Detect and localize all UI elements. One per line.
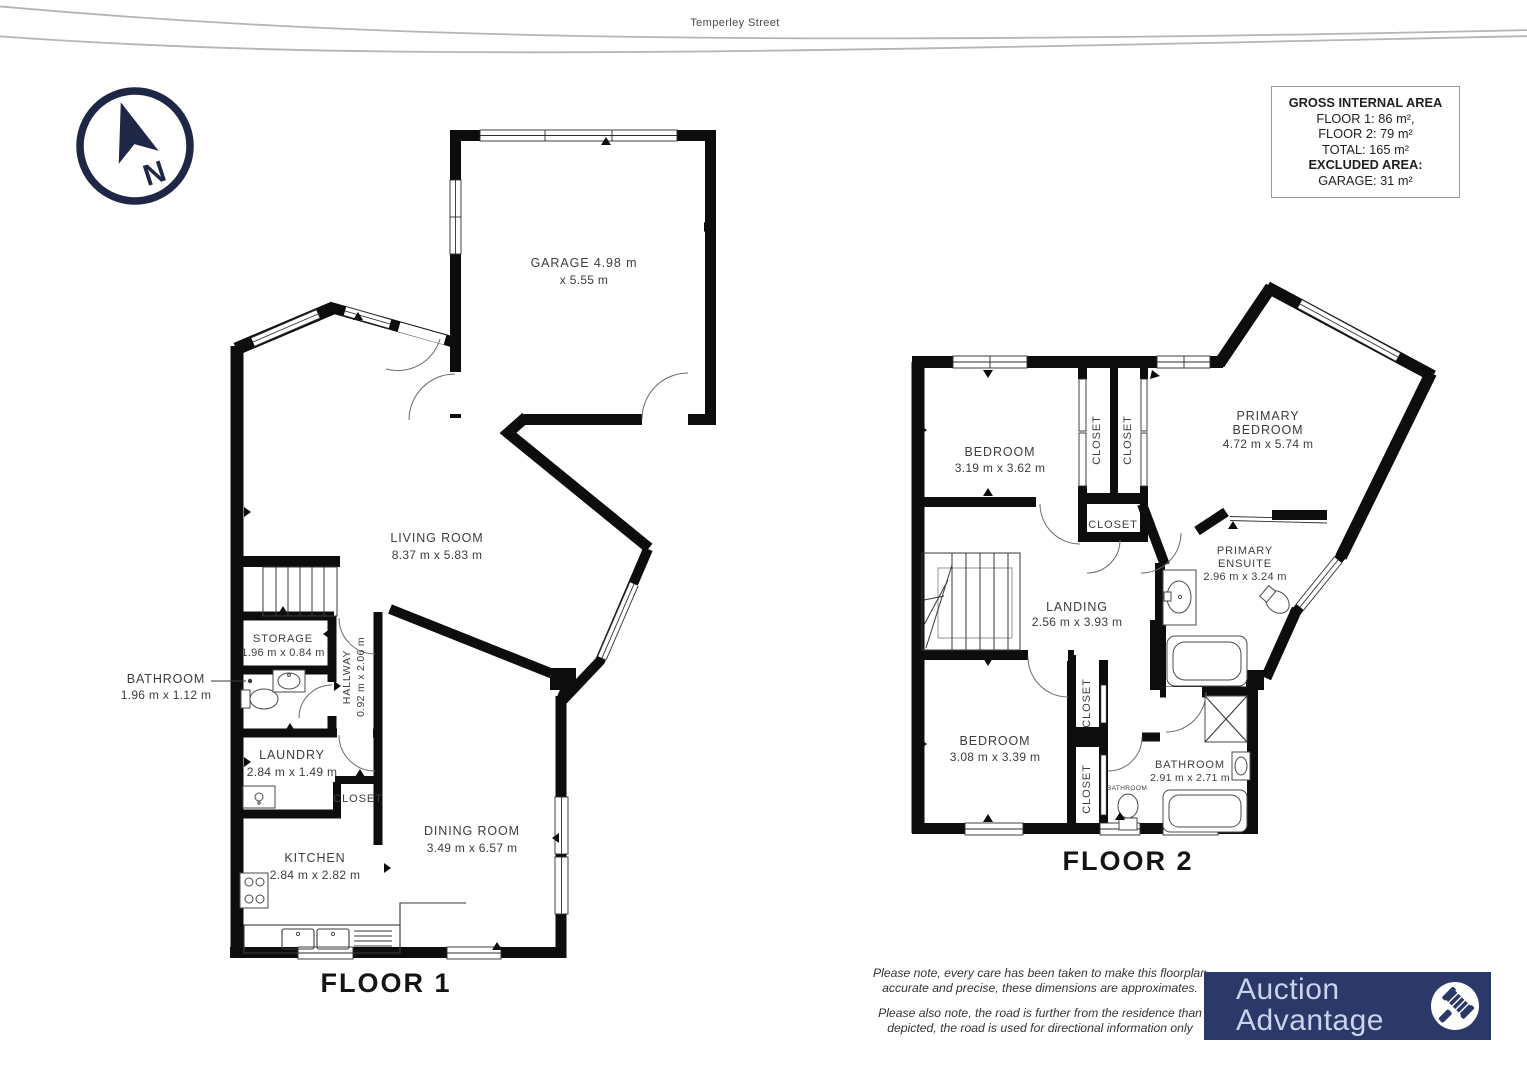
- hallway-label: HALLWAY: [341, 650, 353, 705]
- floor2-stairs: [922, 553, 1020, 650]
- floorplan-page: Temperley Street N: [0, 0, 1527, 1080]
- compass-north-indicator: N: [80, 91, 190, 201]
- closet2-label: CLOSET: [1122, 415, 1134, 464]
- garage-left-window: [450, 180, 461, 254]
- area-floor1: FLOOR 1: 86 m²,: [1274, 111, 1457, 127]
- primary-bedroom-label2: BEDROOM: [1233, 423, 1304, 437]
- area-total: TOTAL: 165 m²: [1274, 142, 1457, 158]
- kitchen-sink-counter-icon: [244, 903, 466, 953]
- disclaimer-line1: Please note, every care has been taken t…: [872, 966, 1208, 981]
- logo-line2: Advantage: [1236, 1005, 1384, 1036]
- ensuite-sink-icon: [1163, 570, 1196, 625]
- laundry-dims: 2.84 m x 1.49 m: [247, 765, 338, 779]
- disclaimer-road: Please also note, the road is further fr…: [872, 1006, 1208, 1036]
- floor2-plan: BEDROOM 3.19 m x 3.62 m CLOSET CLOSET PR…: [912, 287, 1433, 876]
- landing-dims: 2.56 m x 3.93 m: [1032, 615, 1123, 629]
- bathroom1-toilet-icon: [241, 689, 278, 709]
- logo-line1: Auction: [1236, 974, 1384, 1005]
- kitchen-stove-icon: [240, 873, 268, 908]
- floor1-title: FLOOR 1: [320, 968, 451, 998]
- area-excluded-garage: GARAGE: 31 m²: [1274, 173, 1457, 189]
- floor1-stairs: [263, 567, 337, 616]
- kitchen-label: KITCHEN: [284, 851, 345, 865]
- bedroom2-label: BEDROOM: [960, 734, 1031, 748]
- storage-dims: 1.96 m x 0.84 m: [241, 647, 324, 659]
- landing-label: LANDING: [1046, 600, 1108, 614]
- living-angled-window-right: [344, 307, 391, 329]
- living-room-label: LIVING ROOM: [390, 531, 483, 545]
- garage-label: GARAGE 4.98 m: [531, 256, 638, 270]
- laundry-sink-icon: [243, 786, 275, 808]
- bathroom2-bathtub-icon: [1163, 790, 1247, 832]
- bathroom1-label: BATHROOM: [127, 672, 206, 686]
- dining-diagonal-window: [598, 582, 638, 660]
- disclaimer-line3: Please also note, the road is further fr…: [872, 1006, 1208, 1021]
- bedroom1-label: BEDROOM: [965, 445, 1036, 459]
- closet-f1-label: CLOSET: [333, 793, 382, 805]
- road: Temperley Street: [0, 6, 1527, 52]
- bathroom2-label: BATHROOM: [1155, 759, 1225, 771]
- disclaimer-accuracy: Please note, every care has been taken t…: [872, 966, 1208, 996]
- disclaimer-line2: accurate and precise, these dimensions a…: [872, 981, 1208, 996]
- floor1-plan: GARAGE 4.98 m x 5.55 m LIVING ROOM 8.37 …: [121, 130, 711, 998]
- dining-room-label: DINING ROOM: [424, 824, 520, 838]
- bathroom-small-label: BATHROOM: [1107, 785, 1147, 792]
- bathroom2-dims: 2.91 m x 2.71 m: [1150, 772, 1230, 784]
- closet1-label: CLOSET: [1091, 415, 1103, 464]
- area-floor2: FLOOR 2: 79 m²: [1274, 126, 1457, 142]
- bedroom1-dims: 3.19 m x 3.62 m: [955, 461, 1046, 475]
- primary-ensuite-label1: PRIMARY: [1217, 545, 1273, 557]
- bedroom1-top-window: [953, 356, 1027, 368]
- closet4-label: CLOSET: [1081, 678, 1093, 727]
- laundry-label: LAUNDRY: [259, 748, 325, 762]
- storage-label: STORAGE: [253, 633, 313, 645]
- garage-dims: x 5.55 m: [560, 273, 608, 287]
- gross-internal-area-box: GROSS INTERNAL AREA FLOOR 1: 86 m², FLOO…: [1271, 86, 1460, 198]
- bathroom2-sink-icon: [1232, 752, 1250, 780]
- gavel-icon: [1431, 982, 1479, 1030]
- area-title: GROSS INTERNAL AREA: [1274, 95, 1457, 111]
- primary-bedroom-label1: PRIMARY: [1236, 409, 1299, 423]
- garage-top-window: [480, 130, 677, 141]
- primary-ensuite-label2: ENSUITE: [1218, 558, 1272, 570]
- auction-advantage-logo: Auction Advantage: [1204, 972, 1491, 1040]
- living-room-dims: 8.37 m x 5.83 m: [392, 548, 483, 562]
- primary-ensuite-dims: 2.96 m x 3.24 m: [1203, 571, 1286, 583]
- kitchen-dims: 2.84 m x 2.82 m: [270, 868, 361, 882]
- closet3-label: CLOSET: [1088, 519, 1137, 531]
- primary-bedroom-dims: 4.72 m x 5.74 m: [1223, 437, 1314, 451]
- bathroom1-sink-icon: [273, 670, 305, 692]
- bathroom2-shower-icon: [1205, 696, 1247, 742]
- area-excluded-title: EXCLUDED AREA:: [1274, 157, 1457, 173]
- closet5-label: CLOSET: [1081, 764, 1093, 813]
- floor2-title: FLOOR 2: [1062, 846, 1193, 876]
- bathroom1-dims: 1.96 m x 1.12 m: [121, 688, 212, 702]
- ensuite-toilet-icon: [1258, 583, 1294, 618]
- dining-room-dims: 3.49 m x 6.57 m: [427, 841, 518, 855]
- bathroom-small-toilet-icon: [1118, 794, 1138, 830]
- street-label: Temperley Street: [690, 17, 780, 29]
- ensuite-diagonal-window: [1296, 557, 1341, 610]
- bedroom2-dims: 3.08 m x 3.39 m: [950, 750, 1041, 764]
- hallway-dims: 0.92 m x 2.06 m: [355, 637, 367, 717]
- disclaimer-line4: depicted, the road is used for direction…: [872, 1021, 1208, 1036]
- ensuite-bathtub-icon: [1167, 636, 1247, 686]
- living-angled-window-left: [251, 310, 320, 346]
- primary-top-window: [1157, 356, 1210, 368]
- primary-diagonal-window: [1298, 300, 1400, 361]
